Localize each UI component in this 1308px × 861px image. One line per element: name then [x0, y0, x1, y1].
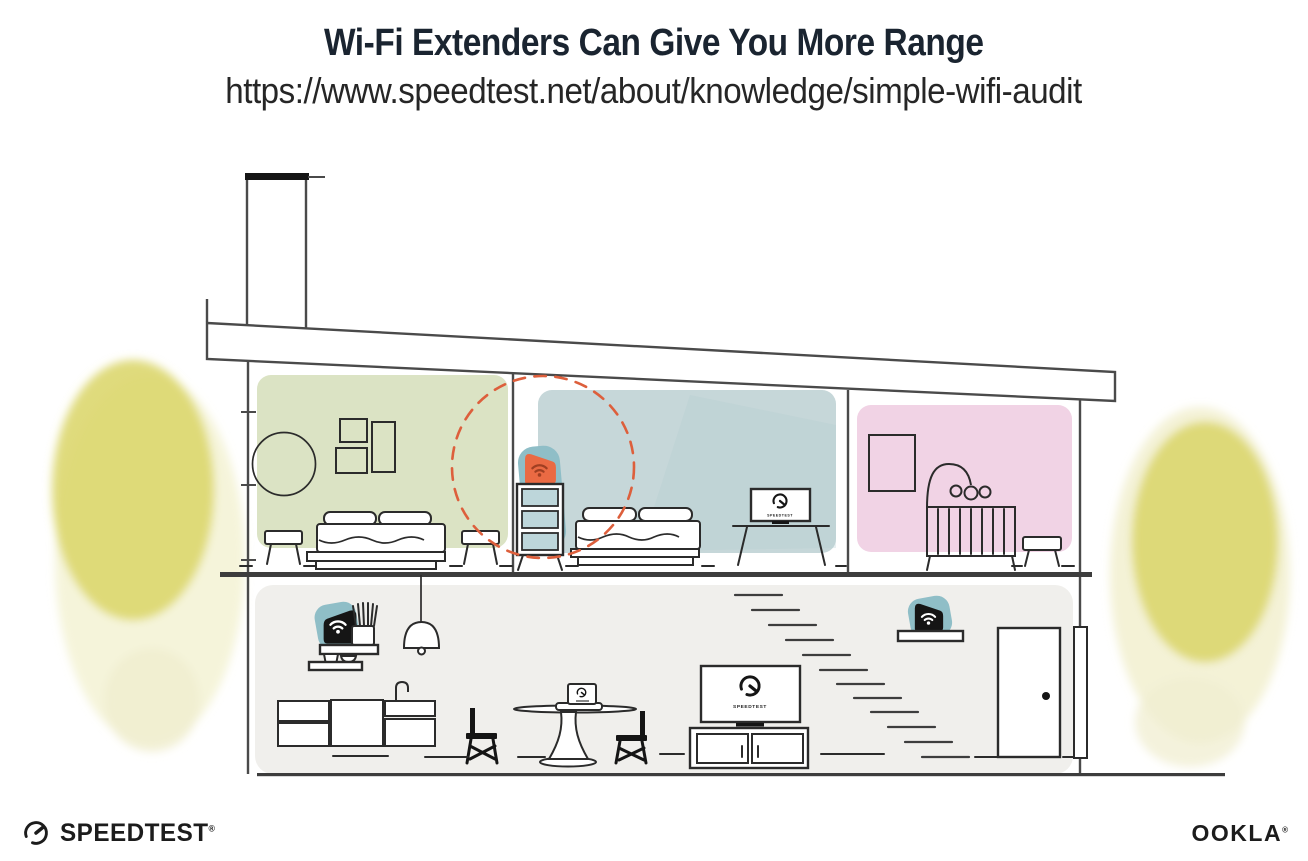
tv-screen-label: SPEEDTEST [767, 514, 793, 518]
speedtest-logo: SPEEDTEST® [20, 817, 220, 849]
ground-line [257, 773, 1225, 776]
upper-floor-slab [220, 572, 1092, 577]
front-door [998, 628, 1060, 757]
speedtest-gauge-icon [20, 817, 52, 849]
media-console [690, 728, 808, 768]
shelf-lower [309, 662, 362, 670]
house-cross-section-illustration: SPEEDTEST [0, 0, 1308, 861]
extender-shelf [898, 631, 963, 641]
living-room-tv: SPEEDTEST [690, 666, 808, 768]
tree-blob-left [52, 360, 245, 752]
infographic-canvas: Wi-Fi Extenders Can Give You More Range … [0, 0, 1308, 861]
sidelight-window [1074, 627, 1087, 758]
cup [324, 654, 338, 662]
shelf-upper [320, 645, 378, 654]
nursery-pink-background [857, 405, 1072, 552]
door-knob [1042, 692, 1050, 700]
ookla-logo: OOKLA® [1192, 820, 1288, 847]
upstairs-extender-unit [517, 444, 568, 570]
tv-screen-label: SPEEDTEST [733, 704, 767, 710]
chimney-cap [245, 173, 309, 180]
footer: SPEEDTEST® OOKLA® [0, 817, 1308, 849]
bed-green [307, 512, 445, 569]
tree-blob-right [1110, 407, 1290, 767]
speedtest-wordmark: SPEEDTEST® [60, 819, 215, 848]
bed-blue [571, 508, 700, 565]
